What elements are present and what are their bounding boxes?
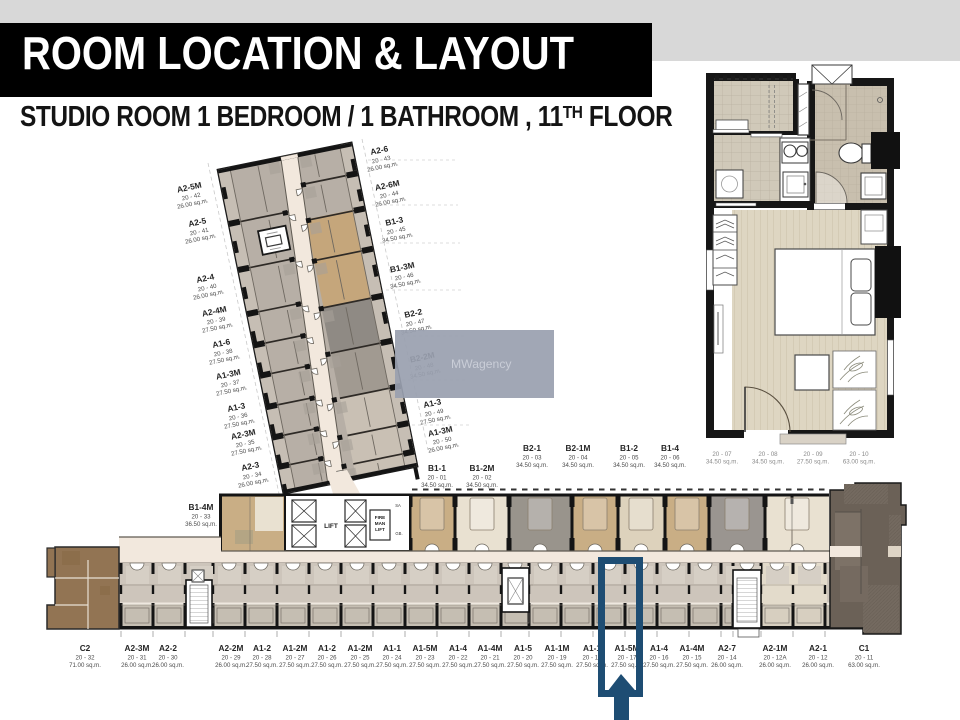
svg-text:34.50 sq.m.: 34.50 sq.m.	[752, 459, 785, 466]
svg-text:20 - 02: 20 - 02	[473, 475, 493, 482]
svg-text:20 - 10: 20 - 10	[849, 451, 869, 458]
svg-text:20 - 27: 20 - 27	[286, 655, 306, 662]
svg-text:A2-7: A2-7	[718, 643, 736, 653]
svg-text:20 - 09: 20 - 09	[803, 451, 823, 458]
svg-text:A2-2: A2-2	[159, 643, 177, 653]
svg-text:27.50 sq.m.: 27.50 sq.m.	[344, 662, 376, 669]
svg-text:A2-1M: A2-1M	[763, 643, 788, 653]
svg-text:C2: C2	[80, 643, 91, 653]
svg-text:20 - 07: 20 - 07	[712, 451, 732, 458]
svg-text:A1-1: A1-1	[383, 643, 401, 653]
svg-text:A1-5M: A1-5M	[413, 643, 438, 653]
svg-text:26.00 sq.m.: 26.00 sq.m.	[711, 662, 743, 669]
svg-text:A1-4: A1-4	[449, 643, 467, 653]
svg-text:20 - 04: 20 - 04	[569, 455, 589, 462]
svg-text:26.00 sq.m.: 26.00 sq.m.	[215, 662, 247, 669]
svg-text:20 - 21: 20 - 21	[481, 655, 501, 662]
svg-text:63.00 sq.m.: 63.00 sq.m.	[843, 459, 876, 466]
svg-text:20 - 32: 20 - 32	[76, 655, 96, 662]
svg-text:26.00 sq.m.: 26.00 sq.m.	[121, 662, 153, 669]
svg-text:27.50 sq.m.: 27.50 sq.m.	[279, 662, 311, 669]
svg-text:20 - 30: 20 - 30	[159, 655, 179, 662]
svg-text:63.00 sq.m.: 63.00 sq.m.	[848, 662, 880, 669]
svg-text:26.00 sq.m.: 26.00 sq.m.	[759, 662, 791, 669]
svg-text:20 - 25: 20 - 25	[351, 655, 371, 662]
svg-text:20 - 24: 20 - 24	[383, 655, 403, 662]
svg-text:A1-2: A1-2	[253, 643, 271, 653]
svg-text:20 - 31: 20 - 31	[128, 655, 148, 662]
svg-text:20 - 08: 20 - 08	[758, 451, 778, 458]
svg-text:34.50 sq.m.: 34.50 sq.m.	[613, 462, 645, 469]
svg-text:26.00 sq.m.: 26.00 sq.m.	[152, 662, 184, 669]
svg-text:ROOM LOCATION & LAYOUT: ROOM LOCATION & LAYOUT	[22, 27, 574, 79]
svg-text:20 - 20: 20 - 20	[514, 655, 534, 662]
svg-text:27.50 sq.m.: 27.50 sq.m.	[376, 662, 408, 669]
svg-text:20 - 03: 20 - 03	[523, 455, 543, 462]
svg-text:B1-4: B1-4	[661, 443, 679, 453]
svg-text:27.50 sq.m.: 27.50 sq.m.	[474, 662, 506, 669]
svg-text:20 - 29: 20 - 29	[222, 655, 242, 662]
svg-text:36.50 sq.m.: 36.50 sq.m.	[185, 521, 217, 528]
svg-text:LIFT: LIFT	[375, 527, 385, 532]
svg-text:20 - 12A: 20 - 12A	[763, 655, 787, 662]
svg-text:A1-2M: A1-2M	[283, 643, 308, 653]
svg-text:B2-1: B2-1	[523, 443, 541, 453]
svg-text:20 - 11: 20 - 11	[855, 655, 874, 662]
svg-text:FIRE: FIRE	[375, 515, 385, 520]
svg-text:20 - 17: 20 - 17	[618, 655, 638, 662]
svg-text:C1: C1	[859, 643, 870, 653]
svg-text:B1-1: B1-1	[428, 463, 446, 473]
svg-text:20 - 16: 20 - 16	[650, 655, 670, 662]
svg-text:27.50 sq.m.: 27.50 sq.m.	[507, 662, 539, 669]
svg-text:20 - 12: 20 - 12	[809, 655, 829, 662]
svg-text:A1-4: A1-4	[650, 643, 668, 653]
svg-text:A2-3M: A2-3M	[125, 643, 150, 653]
svg-text:B1-2M: B1-2M	[470, 463, 495, 473]
svg-text:34.50 sq.m.: 34.50 sq.m.	[466, 482, 498, 489]
svg-text:A1-4M: A1-4M	[680, 643, 705, 653]
svg-text:A1-5: A1-5	[514, 643, 532, 653]
svg-text:20 - 23: 20 - 23	[416, 655, 436, 662]
svg-text:27.50 sq.m.: 27.50 sq.m.	[797, 459, 830, 466]
svg-text:A1-5M: A1-5M	[615, 643, 640, 653]
svg-text:MWagency: MWagency	[451, 357, 512, 371]
svg-text:20 - 06: 20 - 06	[661, 455, 681, 462]
svg-text:A1-4M: A1-4M	[478, 643, 503, 653]
svg-text:27.50 sq.m.: 27.50 sq.m.	[409, 662, 441, 669]
svg-text:34.50 sq.m.: 34.50 sq.m.	[654, 462, 686, 469]
svg-text:A1-1M: A1-1M	[545, 643, 570, 653]
svg-text:20 - 05: 20 - 05	[620, 455, 640, 462]
svg-text:27.50 sq.m.: 27.50 sq.m.	[311, 662, 343, 669]
svg-text:GB.: GB.	[395, 531, 402, 536]
svg-text:20 - 01: 20 - 01	[428, 475, 448, 482]
svg-text:SA: SA	[395, 503, 401, 508]
svg-text:LIFT: LIFT	[324, 523, 338, 530]
svg-text:B1-4M: B1-4M	[189, 502, 214, 512]
svg-text:B1-2: B1-2	[620, 443, 638, 453]
svg-text:20 - 22: 20 - 22	[449, 655, 469, 662]
svg-text:34.50 sq.m.: 34.50 sq.m.	[516, 462, 548, 469]
svg-text:MAN: MAN	[375, 521, 386, 526]
svg-text:27.50 sq.m.: 27.50 sq.m.	[643, 662, 675, 669]
svg-text:20 - 33: 20 - 33	[192, 514, 212, 521]
svg-text:A2-2M: A2-2M	[219, 643, 244, 653]
svg-text:20 - 26: 20 - 26	[318, 655, 338, 662]
svg-text:34.50 sq.m.: 34.50 sq.m.	[562, 462, 594, 469]
svg-text:71.00 sq.m.: 71.00 sq.m.	[69, 662, 101, 669]
svg-text:27.50 sq.m.: 27.50 sq.m.	[246, 662, 278, 669]
svg-text:20 - 14: 20 - 14	[718, 655, 738, 662]
svg-text:27.50 sq.m.: 27.50 sq.m.	[676, 662, 708, 669]
svg-text:20 - 15: 20 - 15	[683, 655, 703, 662]
svg-text:20 - 28: 20 - 28	[253, 655, 273, 662]
svg-text:34.50 sq.m.: 34.50 sq.m.	[421, 482, 453, 489]
svg-text:34.50 sq.m.: 34.50 sq.m.	[706, 459, 739, 466]
svg-text:A1-2M: A1-2M	[348, 643, 373, 653]
svg-text:A2-1: A2-1	[809, 643, 827, 653]
svg-text:26.00 sq.m.: 26.00 sq.m.	[802, 662, 834, 669]
svg-text:27.50 sq.m.: 27.50 sq.m.	[541, 662, 573, 669]
svg-text:20 - 19: 20 - 19	[548, 655, 568, 662]
svg-text:A1-2: A1-2	[318, 643, 336, 653]
svg-text:27.50 sq.m.: 27.50 sq.m.	[442, 662, 474, 669]
svg-text:B2-1M: B2-1M	[566, 443, 591, 453]
